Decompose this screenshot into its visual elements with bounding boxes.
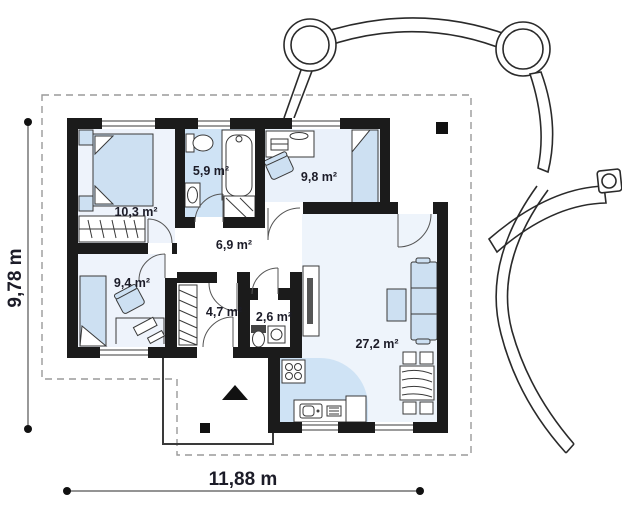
washbasin-icon — [268, 326, 285, 343]
window — [102, 118, 155, 129]
room-area-label-hall: 6,9 m² — [216, 238, 252, 252]
room-area-label-bedroom-2: 9,8 m² — [301, 170, 337, 184]
fridge-icon — [346, 396, 366, 422]
room-area-label-vestibule: 4,7 m² — [206, 305, 242, 319]
chair-icon — [403, 402, 416, 414]
chimney-icon — [436, 122, 448, 134]
window — [375, 422, 413, 433]
single-bed-icon — [352, 130, 378, 206]
floor-plan-page: 9,78 m 11,88 m — [0, 0, 622, 512]
porch — [163, 358, 273, 444]
toilet-icon — [186, 134, 213, 152]
tv-cabinet-icon — [303, 266, 319, 336]
sofa-icon — [411, 258, 437, 344]
kitchen-sink-icon — [294, 400, 346, 422]
closet-icon — [179, 285, 197, 345]
nightstand-icon — [79, 196, 93, 211]
height-dimension-label: 9,78 m — [5, 248, 26, 307]
window — [198, 118, 230, 129]
chair-icon — [420, 352, 433, 364]
desk-icon — [266, 131, 314, 157]
window — [100, 347, 148, 358]
door-swing — [203, 317, 233, 347]
porch-post-icon — [200, 423, 210, 433]
horizontal-dimension: 11,88 m — [63, 469, 424, 495]
door-swing — [268, 208, 300, 240]
sink-icon — [185, 183, 200, 207]
single-bed-icon — [80, 276, 106, 346]
vertical-dimension: 9,78 m — [5, 118, 32, 433]
wardrobe-icon — [79, 216, 145, 242]
room-area-label-bedroom-3: 9,4 m² — [114, 276, 150, 290]
room-area-label-bedroom-1: 10,3 m² — [114, 205, 157, 219]
width-dimension-label: 11,88 m — [209, 469, 278, 490]
window — [292, 118, 340, 129]
room-area-label-wc: 2,6 m² — [256, 310, 292, 324]
stove-icon — [282, 360, 305, 383]
nightstand-icon — [79, 130, 93, 145]
window — [302, 422, 338, 433]
entrance-arrow-icon — [222, 385, 248, 400]
vestibule-furniture — [179, 285, 197, 345]
room-area-label-bathroom: 5,9 m² — [193, 164, 229, 178]
chair-icon — [403, 352, 416, 364]
floor-plan-drawing: 9,78 m 11,88 m — [0, 0, 622, 512]
wc-fixtures — [251, 325, 285, 347]
room-area-label-living-room: 27,2 m² — [355, 337, 398, 351]
toilet-icon — [251, 325, 266, 347]
chair-icon — [420, 402, 433, 414]
coffee-table-icon — [387, 289, 406, 321]
